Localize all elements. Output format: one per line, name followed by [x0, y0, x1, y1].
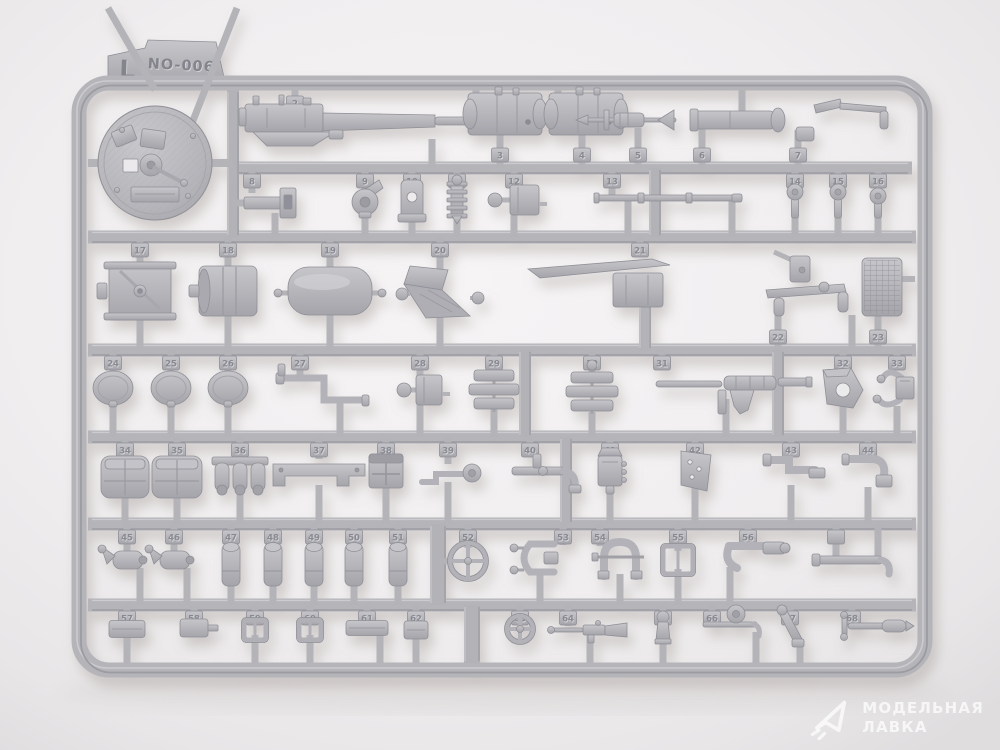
svg-text:9: 9 [362, 178, 368, 188]
svg-text:22: 22 [772, 334, 784, 344]
svg-text:36: 36 [234, 447, 246, 457]
svg-text:13: 13 [606, 178, 618, 188]
svg-text:21: 21 [634, 247, 646, 257]
svg-text:23: 23 [872, 334, 884, 344]
svg-text:25: 25 [165, 360, 177, 370]
svg-text:45: 45 [121, 534, 133, 544]
svg-text:26: 26 [222, 360, 234, 370]
svg-text:31: 31 [656, 360, 668, 370]
svg-text:17: 17 [134, 247, 146, 257]
svg-text:34: 34 [119, 447, 131, 457]
svg-text:7: 7 [795, 152, 801, 162]
sprue-photo: LLNO-006NO-00622334455667788991010111112… [0, 0, 1000, 750]
svg-text:5: 5 [635, 152, 641, 162]
svg-text:27: 27 [294, 360, 306, 370]
svg-text:48: 48 [267, 534, 279, 544]
svg-text:35: 35 [171, 447, 183, 457]
svg-text:43: 43 [785, 447, 797, 457]
svg-text:24: 24 [107, 360, 119, 370]
svg-text:50: 50 [348, 534, 360, 544]
svg-text:46: 46 [168, 534, 180, 544]
svg-text:33: 33 [891, 360, 903, 370]
svg-text:6: 6 [699, 152, 705, 162]
svg-text:16: 16 [872, 178, 884, 188]
svg-text:28: 28 [414, 360, 426, 370]
svg-text:20: 20 [434, 247, 446, 257]
svg-text:53: 53 [557, 534, 569, 544]
svg-text:39: 39 [442, 447, 454, 457]
product-photo: LLNO-006NO-00622334455667788991010111112… [0, 0, 1000, 750]
svg-text:8: 8 [249, 178, 255, 188]
svg-text:54: 54 [594, 534, 606, 544]
svg-text:37: 37 [313, 447, 325, 457]
svg-text:64: 64 [562, 615, 574, 625]
svg-text:49: 49 [308, 534, 320, 544]
svg-text:55: 55 [672, 534, 684, 544]
svg-text:18: 18 [222, 247, 234, 257]
svg-text:3: 3 [497, 152, 503, 162]
svg-text:4: 4 [579, 152, 585, 162]
svg-text:47: 47 [225, 534, 237, 544]
svg-text:19: 19 [324, 247, 336, 257]
svg-text:51: 51 [392, 534, 404, 544]
